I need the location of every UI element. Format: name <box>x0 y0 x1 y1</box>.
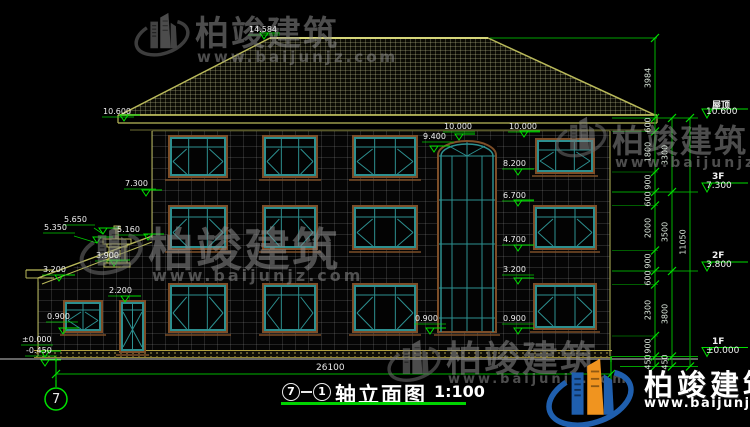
dimension-text: 900 <box>644 174 653 189</box>
spot-elevation-label: 3.900 <box>96 251 119 260</box>
dimension-text: 3500 <box>661 221 670 241</box>
spot-elevation-label: 5.650 <box>64 215 87 224</box>
spot-elevation-label: 0.900 <box>415 314 438 323</box>
dimension-text: 600 <box>644 191 653 206</box>
spot-elevation-label: -0.450 <box>26 346 52 355</box>
spot-elevation-label: 9.400 <box>423 132 446 141</box>
dimension-text: 11050 <box>679 229 688 254</box>
spot-elevation-label: 3.200 <box>43 265 66 274</box>
spot-elevation-label: 7.300 <box>125 179 148 188</box>
brand-logo-icon <box>544 354 636 427</box>
spot-elevation-label: 5.350 <box>44 223 67 232</box>
cad-elevation-canvas: 柏竣建筑 www.baijunjz.com 柏竣建筑 www.baijunjz.… <box>0 0 750 427</box>
drawing-scale: 1:100 <box>434 382 485 401</box>
dimension-text: 1800 <box>644 142 653 162</box>
dimension-text: 3300 <box>661 145 670 165</box>
spot-elevation-label: 8.200 <box>503 159 526 168</box>
title-underline <box>281 402 466 405</box>
brand-url: www.baijunjz.com <box>644 396 750 411</box>
axis-bubble-end: 1 <box>313 383 331 401</box>
overall-width-dimension: 26100 <box>316 363 345 373</box>
spot-elevation-label: 5.160 <box>117 225 140 234</box>
spot-elevation-label: 6.700 <box>503 191 526 200</box>
spot-elevation-label: 14.584 <box>249 25 277 34</box>
spot-elevation-label: 3.200 <box>503 265 526 274</box>
dimension-text: 600 <box>644 270 653 285</box>
spot-elevation-label: 10.000 <box>509 122 537 131</box>
level-elevation: 7.300 <box>706 181 732 191</box>
dimension-text: 600 <box>644 117 653 132</box>
spot-elevation-label: 0.900 <box>503 314 526 323</box>
spot-elevation-label: ±0.000 <box>22 335 52 344</box>
dimension-text: 900 <box>644 253 653 268</box>
dimension-text: 3984 <box>644 68 653 88</box>
spot-elevation-label: 2.200 <box>109 286 132 295</box>
brand-footer: 柏竣建筑 www.baijunjz.com <box>536 350 750 427</box>
axis-dash <box>301 391 312 393</box>
dimension-text: 2000 <box>644 218 653 238</box>
spot-elevation-label: 0.900 <box>47 312 70 321</box>
grid-bubble-label: 7 <box>52 392 60 407</box>
dimension-text: 2300 <box>644 300 653 320</box>
level-elevation: 10.600 <box>706 107 738 117</box>
spot-elevation-label: 10.600 <box>103 107 131 116</box>
spot-elevation-label: 10.000 <box>444 122 472 131</box>
level-elevation: 3.800 <box>706 260 732 270</box>
dimension-text: 3800 <box>661 304 670 324</box>
axis-bubble-start: 7 <box>282 383 300 401</box>
spot-elevation-label: 4.700 <box>503 235 526 244</box>
